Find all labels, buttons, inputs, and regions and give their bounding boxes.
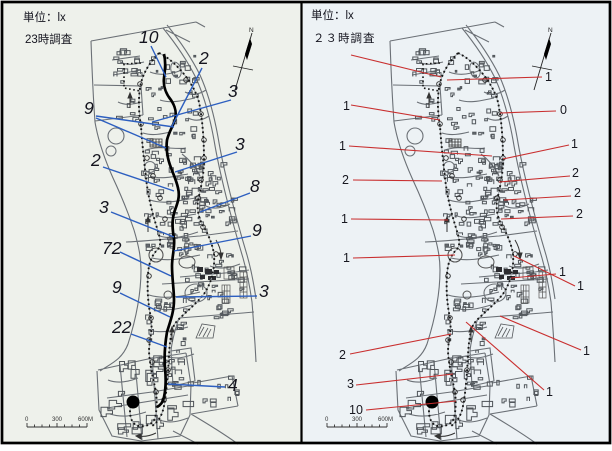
svg-text:N: N [548,27,553,34]
svg-text:22: 22 [111,317,132,337]
svg-text:2: 2 [198,48,209,68]
svg-text:4: 4 [228,375,238,395]
svg-text:0: 0 [560,103,567,117]
svg-text:単位：lx: 単位：lx [311,8,354,22]
svg-text:2: 2 [572,166,579,180]
svg-text:3: 3 [99,197,109,217]
svg-text:9: 9 [252,220,262,240]
svg-text:２３時調査: ２３時調査 [313,31,376,45]
svg-text:300: 300 [52,417,63,423]
svg-text:1: 1 [559,265,566,279]
svg-text:1: 1 [583,344,590,358]
svg-text:1: 1 [546,385,553,399]
svg-text:23時調査: 23時調査 [25,32,73,46]
svg-text:9: 9 [84,98,94,118]
svg-text:10: 10 [349,403,363,417]
svg-text:300: 300 [352,417,363,423]
svg-text:9: 9 [112,277,122,297]
svg-text:10: 10 [139,27,159,47]
svg-text:1: 1 [343,251,350,265]
svg-text:単位：lx: 単位：lx [23,10,66,24]
svg-text:2: 2 [342,173,349,187]
svg-text:2: 2 [574,186,581,200]
svg-text:72: 72 [102,238,122,258]
svg-text:1: 1 [577,279,584,293]
svg-text:2: 2 [90,150,101,170]
svg-text:N: N [249,27,254,34]
svg-text:1: 1 [545,70,552,84]
svg-text:1: 1 [571,137,578,151]
svg-text:2: 2 [576,207,583,221]
svg-text:1: 1 [343,99,350,113]
svg-text:3: 3 [235,134,245,154]
svg-text:2: 2 [339,348,346,362]
svg-text:3: 3 [259,281,269,301]
svg-text:600M: 600M [378,417,393,423]
svg-text:600M: 600M [78,417,93,423]
svg-text:3: 3 [347,377,354,391]
svg-text:1: 1 [341,212,348,226]
svg-text:3: 3 [228,81,238,101]
svg-text:1: 1 [339,139,346,153]
svg-text:8: 8 [250,176,260,196]
